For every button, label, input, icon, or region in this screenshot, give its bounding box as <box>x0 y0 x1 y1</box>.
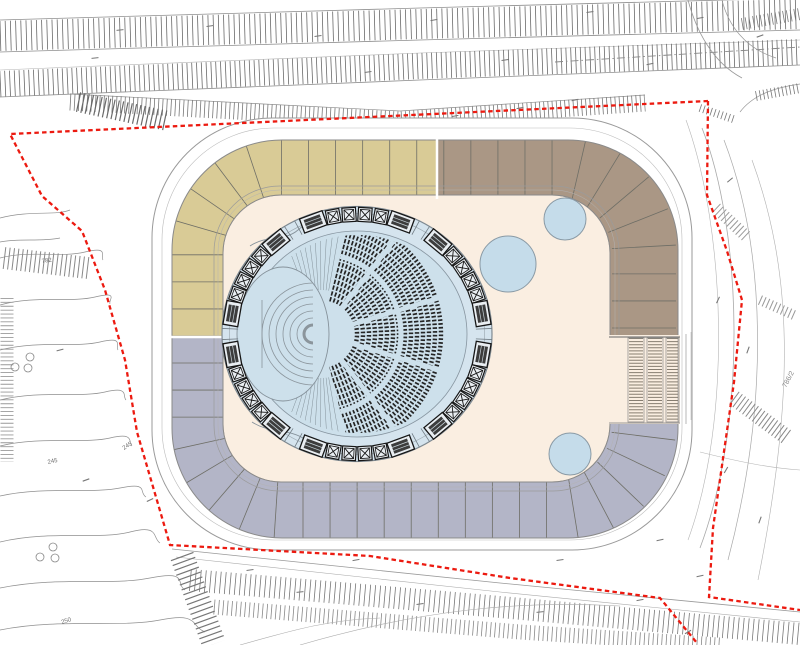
perimeter-box-braced <box>373 208 389 224</box>
perimeter-box-braced <box>325 208 341 224</box>
perimeter-box-braced <box>358 207 372 222</box>
perimeter-box-hatched <box>472 301 491 327</box>
perimeter-box-braced <box>325 443 341 459</box>
perimeter-box-braced <box>342 207 356 222</box>
stair-zone-floor <box>609 335 680 424</box>
elevation-mark <box>297 592 304 593</box>
site-plan: 782245245250786/2 <box>0 0 800 645</box>
mark-stroke <box>537 612 544 613</box>
perimeter-box-hatched <box>223 301 242 327</box>
mark-stroke <box>117 30 124 31</box>
elevation-mark <box>117 30 124 31</box>
perimeter-box-hatched <box>223 341 242 367</box>
elevation-mark <box>537 612 544 613</box>
mark-stroke <box>92 58 99 59</box>
perimeter-box-braced <box>342 446 356 461</box>
skylight-circle <box>549 433 591 475</box>
mark-stroke <box>297 592 304 593</box>
elevation-mark <box>92 58 99 59</box>
site-plan-svg: 782245245250786/2 <box>0 0 800 645</box>
auditorium-hall <box>222 207 492 462</box>
perimeter-box-braced <box>373 443 389 459</box>
skylight-circle <box>544 198 586 240</box>
perimeter-box-hatched <box>472 341 491 367</box>
perimeter-box-braced <box>358 446 372 461</box>
skylight-circle <box>480 236 536 292</box>
